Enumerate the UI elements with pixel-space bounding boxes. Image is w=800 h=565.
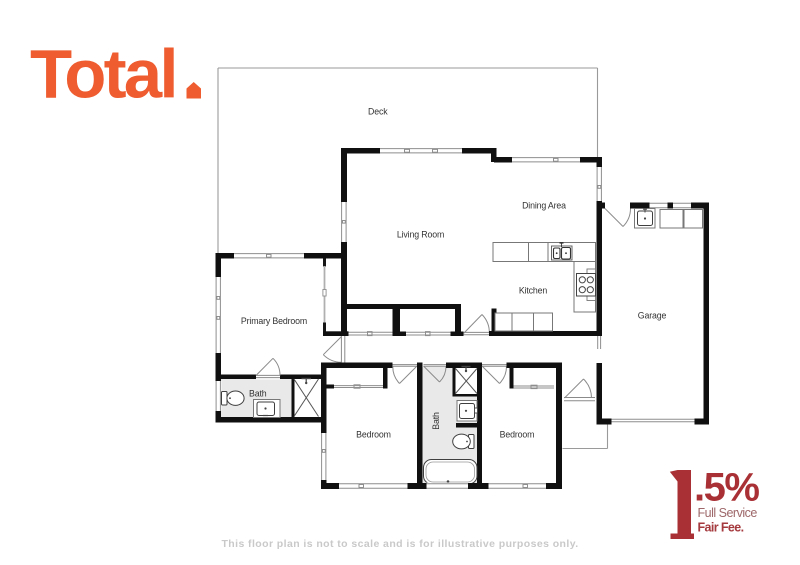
svg-text:Garage: Garage <box>638 311 667 321</box>
svg-text:Bath: Bath <box>249 389 267 399</box>
svg-text:Living Room: Living Room <box>397 230 444 240</box>
svg-text:Total: Total <box>30 36 176 113</box>
svg-text:Dining Area: Dining Area <box>522 201 566 211</box>
svg-text:Bath: Bath <box>431 412 441 430</box>
svg-text:Fair Fee.: Fair Fee. <box>698 521 744 535</box>
svg-text:Bedroom: Bedroom <box>500 430 535 440</box>
svg-text:Full Service: Full Service <box>698 506 758 520</box>
svg-text:Deck: Deck <box>368 107 388 117</box>
svg-text:This floor plan is not to scal: This floor plan is not to scale and is f… <box>221 538 578 550</box>
svg-text:.5%: .5% <box>694 466 759 510</box>
svg-text:Primary Bedroom: Primary Bedroom <box>241 316 307 326</box>
svg-text:Bedroom: Bedroom <box>356 430 391 440</box>
svg-text:Kitchen: Kitchen <box>519 286 548 296</box>
